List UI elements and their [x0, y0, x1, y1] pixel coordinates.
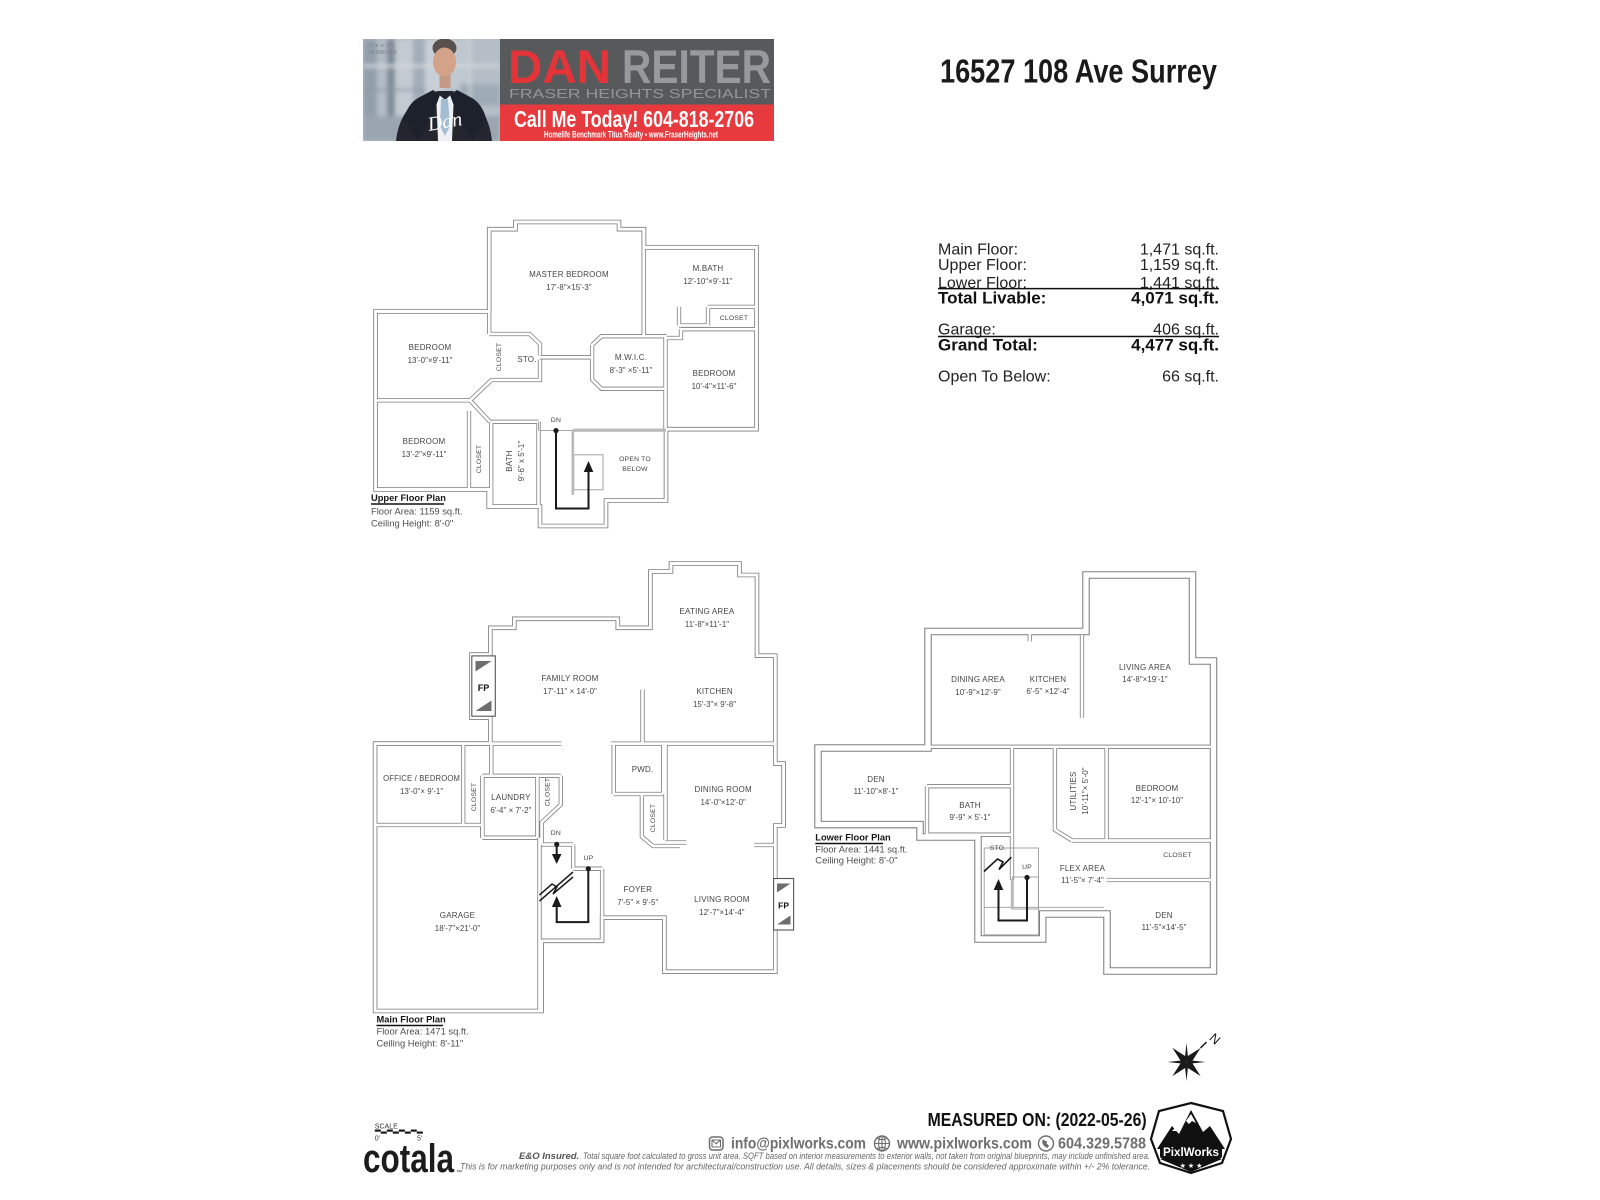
svg-text:DN: DN: [551, 417, 561, 424]
svg-text:66 sq.ft.: 66 sq.ft.: [1162, 369, 1219, 386]
svg-text:17'-11" × 14'-0": 17'-11" × 14'-0": [543, 687, 597, 696]
svg-text:Grand Total:: Grand Total:: [938, 336, 1038, 355]
svg-text:www.pixlworks.com: www.pixlworks.com: [896, 1136, 1032, 1153]
svg-text:HOMELIFE: HOMELIFE: [369, 50, 397, 56]
svg-text:11'-5"× 7'-4": 11'-5"× 7'-4": [1061, 876, 1104, 885]
svg-text:11'-10"×8'-1": 11'-10"×8'-1": [854, 787, 899, 796]
svg-text:KITCHEN: KITCHEN: [1030, 675, 1067, 684]
svg-text:Ceiling Height: 8'-0": Ceiling Height: 8'-0": [371, 518, 453, 529]
svg-text:11'-8"×11'-1": 11'-8"×11'-1": [685, 620, 729, 629]
svg-text:DEN: DEN: [867, 775, 885, 784]
svg-text:STO.: STO.: [990, 845, 1007, 852]
svg-text:Upper Floor Plan: Upper Floor Plan: [371, 493, 446, 503]
svg-text:This is for marketing purposes: This is for marketing purposes only and …: [460, 1162, 1150, 1173]
svg-text:10'-9"×12'-9": 10'-9"×12'-9": [955, 688, 1001, 697]
svg-text:Floor Area: 1471 sq.ft.: Floor Area: 1471 sq.ft.: [377, 1026, 469, 1037]
svg-text:KITCHEN: KITCHEN: [696, 687, 733, 696]
svg-text:BATH: BATH: [505, 450, 514, 472]
svg-text:M.BATH: M.BATH: [693, 264, 724, 273]
svg-text:9'-9" × 5'-1": 9'-9" × 5'-1": [949, 813, 990, 822]
svg-text:BATH: BATH: [959, 801, 981, 810]
svg-text:SCALE: SCALE: [375, 1124, 398, 1131]
svg-text:4,071 sq.ft.: 4,071 sq.ft.: [1131, 289, 1219, 308]
svg-text:6'-5" ×12'-4": 6'-5" ×12'-4": [1026, 687, 1069, 696]
svg-text:1,471 sq.ft.: 1,471 sq.ft.: [1140, 242, 1219, 259]
svg-text:CLOSET: CLOSET: [476, 445, 483, 473]
svg-text:PWD.: PWD.: [632, 765, 654, 774]
svg-text:LIVING AREA: LIVING AREA: [1119, 663, 1171, 672]
svg-text:UTILITIES: UTILITIES: [1069, 771, 1078, 810]
svg-text:M.W.I.C.: M.W.I.C.: [615, 353, 647, 362]
svg-text:FP: FP: [778, 901, 789, 911]
svg-text:14'-0"×12'-0": 14'-0"×12'-0": [700, 798, 746, 807]
svg-text:10'-11"× 5'-0": 10'-11"× 5'-0": [1081, 767, 1090, 814]
svg-text:DINING ROOM: DINING ROOM: [695, 785, 752, 794]
svg-text:GARAGE: GARAGE: [440, 911, 475, 920]
svg-text:info@pixlworks.com: info@pixlworks.com: [731, 1136, 866, 1153]
svg-text:OPEN TO: OPEN TO: [619, 456, 651, 463]
svg-text:DINING AREA: DINING AREA: [951, 675, 1005, 684]
svg-text:8'-3" ×5'-11": 8'-3" ×5'-11": [610, 366, 653, 375]
svg-text:604.329.5788: 604.329.5788: [1058, 1136, 1146, 1153]
svg-text:BEDROOM: BEDROOM: [1136, 784, 1179, 793]
svg-text:BEDROOM: BEDROOM: [409, 343, 452, 352]
svg-text:CLOSET: CLOSET: [545, 778, 552, 806]
svg-text:Call Me Today! 604-818-2706: Call Me Today! 604-818-2706: [514, 106, 754, 132]
svg-text:MASTER BEDROOM: MASTER BEDROOM: [529, 270, 609, 279]
svg-text:12'-10"×9'-11": 12'-10"×9'-11": [683, 277, 732, 286]
svg-text:13'-2"×9'-11": 13'-2"×9'-11": [402, 450, 447, 459]
svg-text:FOYER: FOYER: [624, 885, 653, 894]
svg-text:9'-6" x 5'-1": 9'-6" x 5'-1": [517, 441, 526, 482]
svg-text:Main Floor Plan: Main Floor Plan: [377, 1015, 447, 1025]
svg-text:DN: DN: [551, 830, 561, 837]
svg-text:7'-5" × 9'-5": 7'-5" × 9'-5": [617, 898, 658, 907]
svg-text:CLOSET: CLOSET: [1163, 852, 1191, 859]
svg-text:Lower Floor Plan: Lower Floor Plan: [815, 833, 891, 843]
svg-text:UP: UP: [1022, 864, 1032, 871]
svg-text:10'-4"×11'-6": 10'-4"×11'-6": [692, 382, 737, 391]
svg-text:E&O Insured.: E&O Insured.: [519, 1151, 579, 1162]
svg-text:cotala: cotala: [363, 1137, 455, 1181]
svg-text:4,477 sq.ft.: 4,477 sq.ft.: [1131, 336, 1219, 355]
svg-text:PixlWorks: PixlWorks: [1163, 1147, 1219, 1159]
svg-text:LAUNDRY: LAUNDRY: [491, 793, 531, 802]
svg-text:CLOSET: CLOSET: [720, 315, 748, 322]
svg-text:BELOW: BELOW: [622, 466, 648, 473]
svg-text:14'-8"×19'-1": 14'-8"×19'-1": [1122, 675, 1168, 684]
svg-text:★★★★★: ★★★★★: [369, 43, 396, 49]
svg-text:Total Livable:: Total Livable:: [938, 289, 1046, 308]
svg-text:UP: UP: [583, 855, 593, 862]
svg-text:Open To Below:: Open To Below:: [938, 369, 1051, 386]
svg-text:1,159 sq.ft.: 1,159 sq.ft.: [1140, 257, 1219, 274]
svg-text:STO.: STO.: [517, 355, 536, 364]
svg-text:Ceiling Height: 8'-0": Ceiling Height: 8'-0": [815, 855, 897, 866]
svg-text:DEN: DEN: [1155, 911, 1173, 920]
svg-text:FRASER HEIGHTS SPECIALIST: FRASER HEIGHTS SPECIALIST: [509, 86, 771, 101]
svg-text:18'-7"×21'-0": 18'-7"×21'-0": [435, 924, 481, 933]
svg-text:OFFICE / BEDROOM: OFFICE / BEDROOM: [383, 774, 460, 783]
svg-text:Main Floor:: Main Floor:: [938, 242, 1018, 259]
svg-text:16527 108 Ave Surrey: 16527 108 Ave Surrey: [940, 54, 1217, 91]
svg-text:★ ★ ★: ★ ★ ★: [1180, 1162, 1203, 1170]
svg-text:CLOSET: CLOSET: [650, 804, 657, 832]
svg-text:12'-1"× 10'-10": 12'-1"× 10'-10": [1131, 796, 1183, 805]
svg-text:12'-7"×14'-4": 12'-7"×14'-4": [699, 908, 745, 917]
svg-text:Floor Area: 1159 sq.ft.: Floor Area: 1159 sq.ft.: [371, 506, 463, 517]
svg-text:FAMILY ROOM: FAMILY ROOM: [541, 674, 598, 683]
svg-text:Total square foot calculated t: Total square foot calculated to gross un…: [583, 1151, 1150, 1162]
svg-text:LIVING ROOM: LIVING ROOM: [694, 895, 750, 904]
svg-text:11'-5"×14'-5": 11'-5"×14'-5": [1142, 923, 1187, 932]
svg-text:Floor Area: 1441 sq.ft.: Floor Area: 1441 sq.ft.: [815, 844, 907, 855]
svg-text:Homelife Benchmark Titus Realt: Homelife Benchmark Titus Realty • www.Fr…: [544, 130, 718, 140]
svg-text:CLOSET: CLOSET: [471, 783, 478, 811]
svg-text:13'-0"× 9'-1": 13'-0"× 9'-1": [400, 787, 443, 796]
svg-text:6'-4" × 7'-2": 6'-4" × 7'-2": [490, 806, 531, 815]
svg-text:Ceiling Height: 8'-11": Ceiling Height: 8'-11": [377, 1037, 464, 1048]
svg-text:15'-3"× 9'-8": 15'-3"× 9'-8": [693, 700, 736, 709]
svg-text:MEASURED ON: (2022-05-26): MEASURED ON: (2022-05-26): [928, 1109, 1147, 1130]
svg-text:13'-0"×9'-11": 13'-0"×9'-11": [408, 356, 453, 365]
svg-text:Upper Floor:: Upper Floor:: [938, 257, 1027, 274]
svg-text:BEDROOM: BEDROOM: [403, 437, 446, 446]
svg-text:FLEX AREA: FLEX AREA: [1060, 864, 1106, 873]
svg-text:CLOSET: CLOSET: [496, 343, 503, 371]
svg-text:BEDROOM: BEDROOM: [693, 369, 736, 378]
svg-text:EATING AREA: EATING AREA: [680, 607, 735, 616]
svg-text:17'-8"×15'-3": 17'-8"×15'-3": [546, 283, 592, 292]
svg-text:FP: FP: [478, 683, 490, 693]
